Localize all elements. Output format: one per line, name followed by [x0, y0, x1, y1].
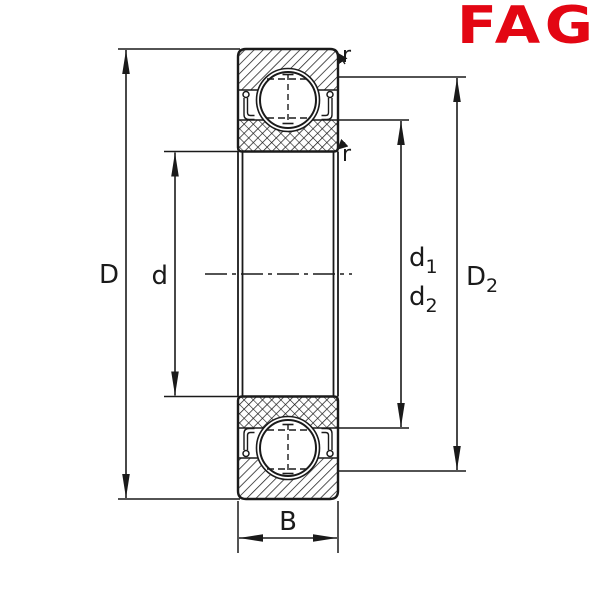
arrow-up: [122, 50, 130, 74]
drawing-canvas: D d d1 d2 D2: [0, 0, 600, 600]
arrow-left: [239, 534, 263, 542]
bearing-technical-drawing: D d d1 d2 D2: [0, 0, 600, 600]
bearing-section-top: [238, 49, 338, 152]
arrow-down: [171, 372, 179, 396]
arrow-up: [171, 153, 179, 177]
arrow-down: [397, 403, 405, 427]
label-d: d: [151, 261, 168, 291]
shield-anchor-left: [243, 451, 249, 457]
label-r-inner: r: [342, 142, 352, 167]
arrow-up: [453, 78, 461, 102]
label-D: D: [99, 260, 119, 290]
label-D2: D2: [466, 262, 498, 297]
label-B: B: [279, 507, 297, 537]
shield-anchor-left: [243, 92, 249, 98]
arrow-down: [122, 474, 130, 498]
arrow-right: [313, 534, 337, 542]
label-d2: d2: [409, 282, 438, 317]
shield-anchor-right: [327, 451, 333, 457]
label-d1: d1: [409, 243, 438, 278]
label-r-top: r: [342, 43, 352, 68]
bearing-section-bottom: [238, 397, 338, 500]
fag-logo: FAG: [456, 4, 597, 48]
arrow-down: [453, 446, 461, 470]
shield-anchor-right: [327, 92, 333, 98]
arrow-up: [397, 121, 405, 145]
